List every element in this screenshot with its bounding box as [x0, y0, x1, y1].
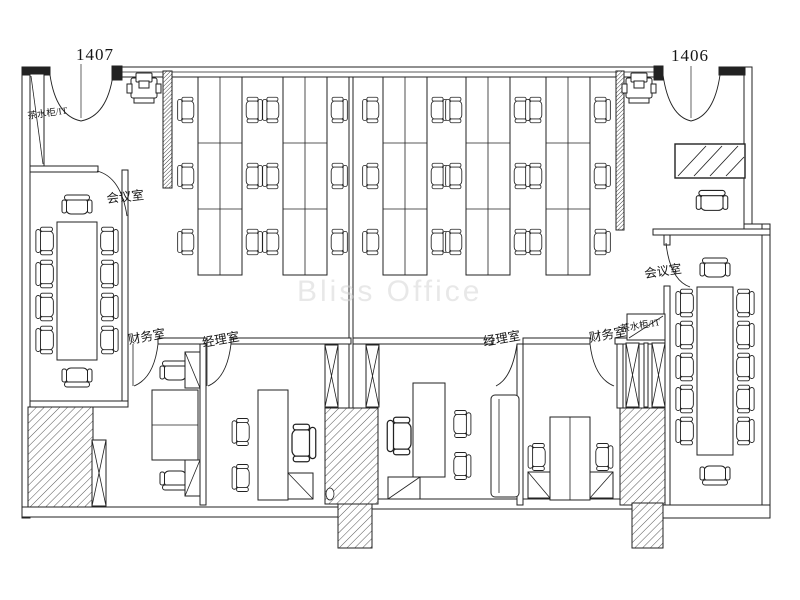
chair-icon [263, 163, 279, 189]
room-label-manager-left: 经理室 [201, 329, 241, 350]
chair-icon [700, 258, 730, 277]
hatch-strip [616, 71, 624, 230]
chair-icon [454, 453, 471, 480]
chair-icon [431, 97, 447, 123]
chair-icon [246, 163, 262, 189]
chair-icon [178, 229, 194, 255]
wall [523, 338, 590, 344]
shaft-hatch [632, 503, 663, 548]
room-label-manager-right: 经理室 [482, 328, 522, 349]
shaft-hatch [338, 504, 372, 548]
chair-icon [331, 97, 347, 123]
chair-icon [594, 229, 610, 255]
chair-icon [737, 289, 754, 317]
printer-icon [629, 98, 649, 103]
printer-icon [134, 98, 154, 103]
wall [762, 224, 770, 518]
chair-icon [331, 163, 347, 189]
chair-icon [431, 163, 447, 189]
door-arc [208, 344, 231, 386]
chair-icon [36, 326, 53, 354]
wall [200, 344, 206, 505]
chair-icon [263, 97, 279, 123]
manager-chair-icon [387, 417, 411, 455]
chair-icon [62, 368, 92, 387]
chair-icon [676, 417, 693, 445]
printer-icon [139, 81, 149, 88]
chair-icon [737, 385, 754, 413]
chair-icon [363, 229, 379, 255]
watermark: Bliss Office [297, 275, 483, 308]
wall-stub [654, 66, 663, 80]
chair-icon [676, 321, 693, 349]
wall [353, 338, 493, 344]
door-arc [590, 344, 614, 386]
sofa [491, 395, 519, 497]
desk [258, 390, 288, 500]
shaft-hatch [620, 408, 665, 505]
wall [231, 338, 351, 344]
door-arc [81, 75, 113, 121]
chair-icon [737, 417, 754, 445]
room-label-meeting-left: 会议室 [106, 187, 145, 206]
chair-icon [232, 465, 249, 492]
chair-icon [696, 190, 728, 210]
manager-chair-icon [292, 424, 316, 462]
shaft-hatch [28, 407, 93, 507]
printer-icon [651, 84, 656, 93]
chair-icon [232, 419, 249, 446]
chair-icon [36, 260, 53, 288]
door-number-1407: 1407 [76, 45, 114, 64]
chair-icon [246, 229, 262, 255]
column-marker [326, 488, 334, 500]
wall [372, 499, 644, 509]
floor-plan: Bliss Office 1407 1406 茶水柜/IT 会议室 财务室 经理… [0, 0, 800, 600]
chair-icon [526, 163, 542, 189]
door-arc [134, 344, 158, 386]
chair-icon [36, 293, 53, 321]
chair-icon [446, 229, 462, 255]
chair-icon [101, 326, 118, 354]
chair-icon [331, 229, 347, 255]
wall [644, 343, 648, 407]
chair-icon [700, 466, 730, 485]
printer-icon [634, 81, 644, 88]
chair-icon [363, 163, 379, 189]
chair-icon [178, 163, 194, 189]
printer-icon [156, 84, 161, 93]
chair-icon [737, 321, 754, 349]
wall [653, 229, 770, 235]
chair-icon [101, 293, 118, 321]
wall [30, 401, 128, 407]
wall [663, 505, 770, 518]
chair-icon [62, 195, 92, 214]
wall-stub [112, 66, 122, 80]
room-label-meeting-right: 会议室 [643, 261, 682, 281]
desk [413, 383, 445, 477]
chair-icon [526, 97, 542, 123]
chair-icon [454, 411, 471, 438]
chair-icon [676, 289, 693, 317]
chair-icon [101, 260, 118, 288]
wall [617, 344, 623, 408]
printer-icon [127, 84, 132, 93]
chair-icon [528, 444, 545, 471]
door-arc [496, 344, 517, 386]
chair-icon [594, 163, 610, 189]
wall [22, 507, 342, 517]
chair-icon [363, 97, 379, 123]
conference-table [697, 287, 733, 455]
chair-icon [676, 353, 693, 381]
conference-table [57, 222, 97, 360]
chair-icon [246, 97, 262, 123]
door-arc [691, 75, 720, 121]
chair-icon [431, 229, 447, 255]
hatch-strip [163, 71, 172, 188]
chair-icon [594, 97, 610, 123]
chair-icon [446, 163, 462, 189]
door-number-1406: 1406 [671, 46, 709, 65]
wall [349, 77, 353, 408]
chair-icon [263, 229, 279, 255]
printer-icon [622, 84, 627, 93]
chair-icon [101, 227, 118, 255]
chair-icon [737, 353, 754, 381]
wall [30, 166, 98, 172]
chair-icon [36, 227, 53, 255]
wall-stub [719, 67, 745, 75]
chair-icon [178, 97, 194, 123]
wall [664, 235, 670, 245]
door-arc [663, 75, 691, 121]
chair-icon [526, 229, 542, 255]
chair-icon [446, 97, 462, 123]
chair-icon [676, 385, 693, 413]
chair-icon [596, 444, 613, 471]
